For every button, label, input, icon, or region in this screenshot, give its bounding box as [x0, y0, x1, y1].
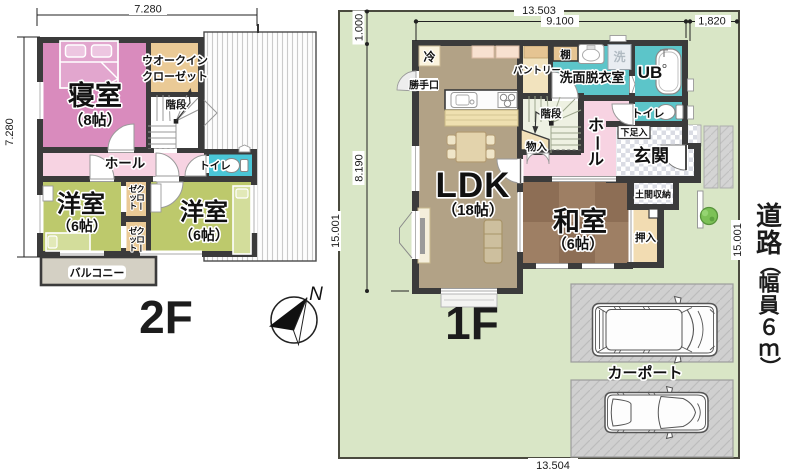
svg-text:15.001: 15.001: [732, 223, 744, 257]
svg-text:洗: 洗: [613, 49, 625, 64]
svg-text:６: ６: [759, 317, 780, 340]
svg-text:バルコニー: バルコニー: [70, 267, 125, 280]
svg-text:パントリー: パントリー: [513, 65, 561, 77]
svg-text:冷: 冷: [423, 49, 435, 64]
svg-text:押入: 押入: [635, 231, 656, 244]
svg-text:（8帖）: （8帖）: [68, 111, 121, 129]
svg-text:ホール: ホール: [105, 156, 146, 171]
svg-text:UB: UB: [638, 63, 663, 82]
svg-text:階段: 階段: [166, 98, 187, 111]
svg-text:1F: 1F: [445, 297, 499, 349]
svg-text:9.100: 9.100: [546, 16, 574, 28]
svg-text:（: （: [758, 254, 782, 275]
svg-text:2F: 2F: [139, 291, 193, 343]
svg-text:ー: ー: [588, 135, 605, 151]
svg-text:クローゼット: クローゼット: [142, 69, 208, 83]
svg-text:員: 員: [758, 295, 780, 318]
svg-text:（18帖）: （18帖）: [442, 201, 504, 219]
svg-text:1.000: 1.000: [354, 14, 366, 42]
svg-text:7.280: 7.280: [4, 118, 16, 146]
svg-text:寝室: 寝室: [68, 80, 122, 111]
svg-text:13.504: 13.504: [536, 460, 570, 472]
svg-text:ウオークイン: ウオークイン: [142, 54, 208, 67]
svg-text:7.280: 7.280: [134, 4, 162, 16]
svg-text:カーポート: カーポート: [607, 364, 682, 382]
svg-text:和室: 和室: [553, 206, 607, 237]
svg-text:トイレ: トイレ: [199, 160, 231, 172]
svg-text:階段: 階段: [541, 107, 562, 120]
svg-text:ホ: ホ: [588, 117, 604, 135]
svg-text:N: N: [309, 284, 323, 305]
svg-text:ト: ト: [129, 201, 138, 211]
svg-text:1,820: 1,820: [698, 16, 726, 28]
svg-text:ト: ト: [129, 243, 138, 253]
svg-text:棚: 棚: [560, 48, 571, 61]
svg-text:洋室: 洋室: [57, 190, 105, 218]
svg-text:（6帖）: （6帖）: [57, 218, 107, 234]
svg-text:道: 道: [756, 201, 782, 231]
svg-text:15.001: 15.001: [330, 214, 342, 248]
svg-text:下足入: 下足入: [620, 128, 647, 138]
svg-text:勝手口: 勝手口: [409, 79, 439, 92]
svg-text:8.190: 8.190: [354, 154, 366, 182]
svg-text:物入: 物入: [526, 140, 547, 153]
svg-text:幅: 幅: [759, 273, 780, 296]
svg-text:ル: ル: [588, 152, 604, 169]
svg-text:LDK: LDK: [436, 166, 511, 205]
svg-text:トイレ: トイレ: [632, 107, 665, 120]
svg-text:洗面脱衣室: 洗面脱衣室: [559, 70, 624, 85]
svg-text:洋室: 洋室: [180, 198, 228, 226]
svg-text:（6帖）: （6帖）: [179, 227, 229, 243]
svg-text:）: ）: [758, 357, 782, 378]
svg-text:土間収納: 土間収納: [635, 189, 671, 200]
svg-text:（6帖）: （6帖）: [552, 235, 604, 253]
svg-text:玄関: 玄関: [633, 145, 669, 166]
